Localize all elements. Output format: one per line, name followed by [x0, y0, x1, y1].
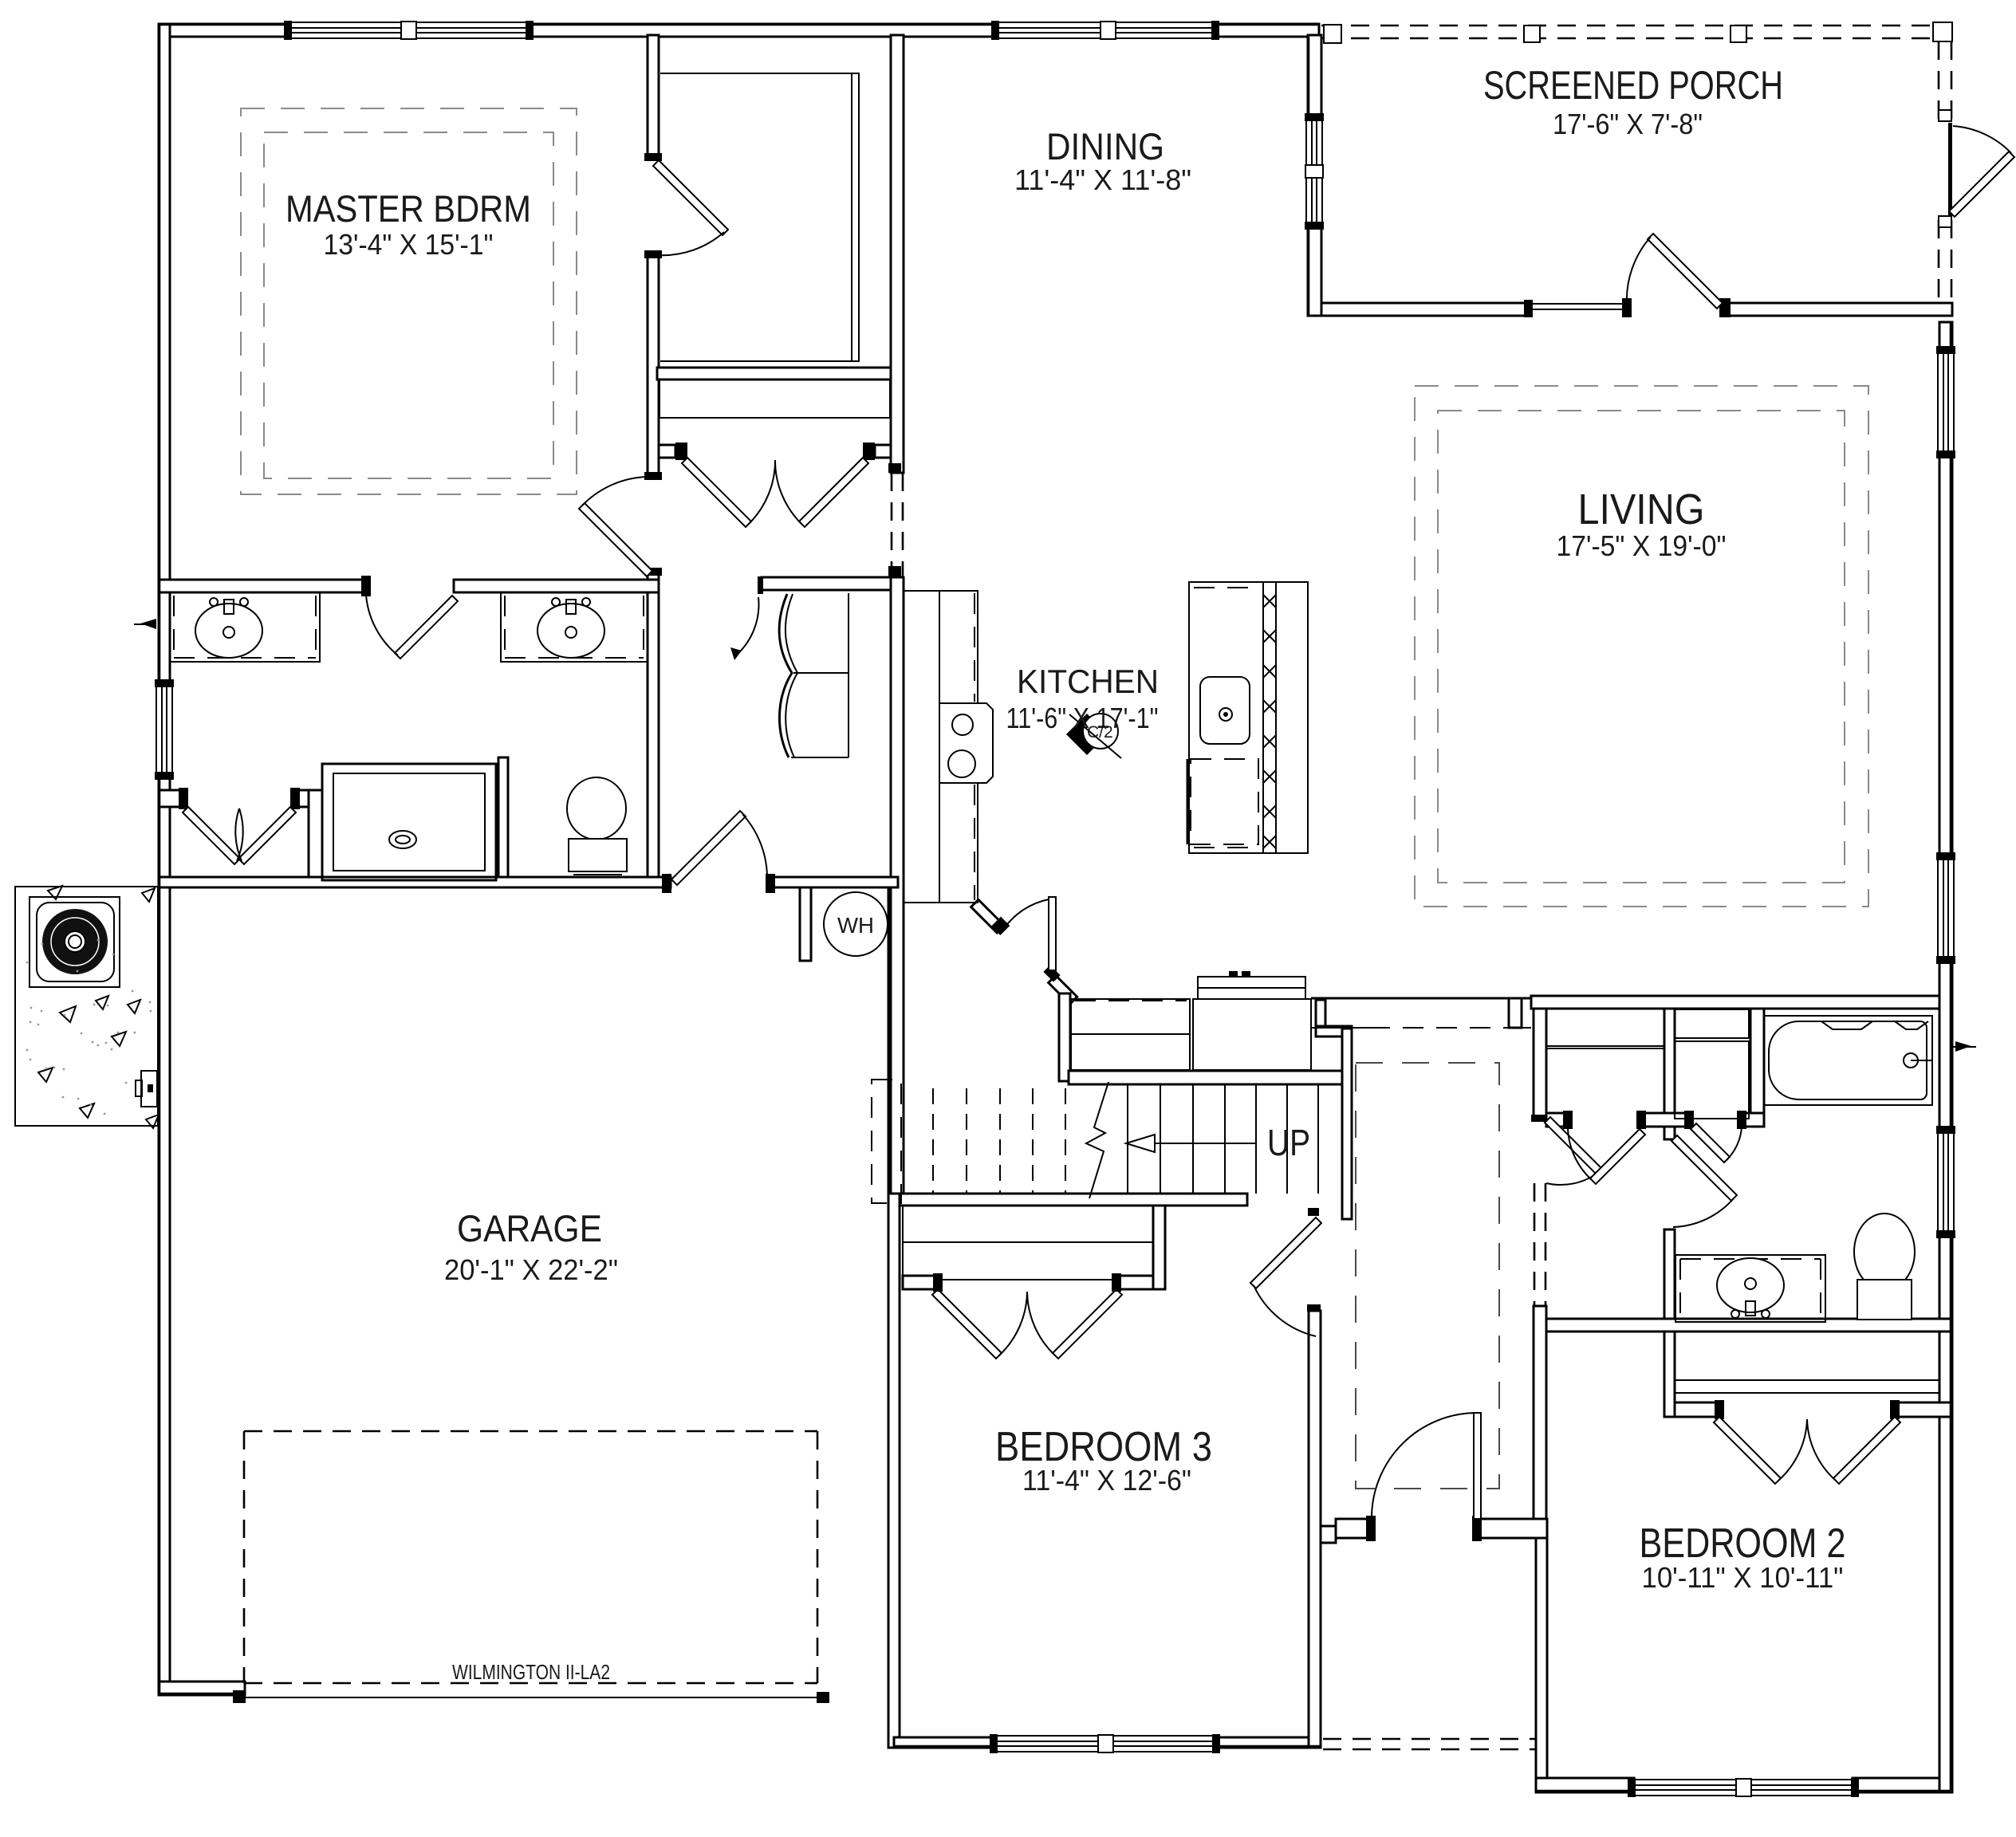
- svg-text:UP: UP: [1267, 1122, 1310, 1163]
- svg-text:GARAGE: GARAGE: [457, 1207, 602, 1249]
- svg-text:17'-5" X 19'-0": 17'-5" X 19'-0": [1557, 529, 1727, 562]
- svg-text:17'-6" X 7'-8": 17'-6" X 7'-8": [1553, 108, 1703, 140]
- svg-text:DINING: DINING: [1046, 125, 1164, 167]
- svg-text:MASTER BDRM: MASTER BDRM: [285, 187, 531, 230]
- svg-text:BEDROOM 2: BEDROOM 2: [1640, 1520, 1846, 1567]
- svg-text:11'-4" X 11'-8": 11'-4" X 11'-8": [1014, 163, 1191, 196]
- svg-text:10'-11" X 10'-11": 10'-11" X 10'-11": [1642, 1561, 1844, 1594]
- svg-text:11'-6" X 17'-1": 11'-6" X 17'-1": [1006, 702, 1159, 734]
- svg-text:WILMINGTON II-LA2: WILMINGTON II-LA2: [452, 1660, 610, 1684]
- svg-text:LIVING: LIVING: [1578, 486, 1705, 533]
- svg-text:KITCHEN: KITCHEN: [1017, 663, 1159, 700]
- svg-text:13'-4" X 15'-1": 13'-4" X 15'-1": [324, 228, 494, 261]
- svg-text:20'-1" X 22'-2": 20'-1" X 22'-2": [444, 1253, 618, 1286]
- svg-text:SCREENED PORCH: SCREENED PORCH: [1483, 63, 1783, 108]
- svg-text:WH: WH: [837, 913, 874, 938]
- svg-text:11'-4" X 12'-6": 11'-4" X 12'-6": [1022, 1464, 1191, 1497]
